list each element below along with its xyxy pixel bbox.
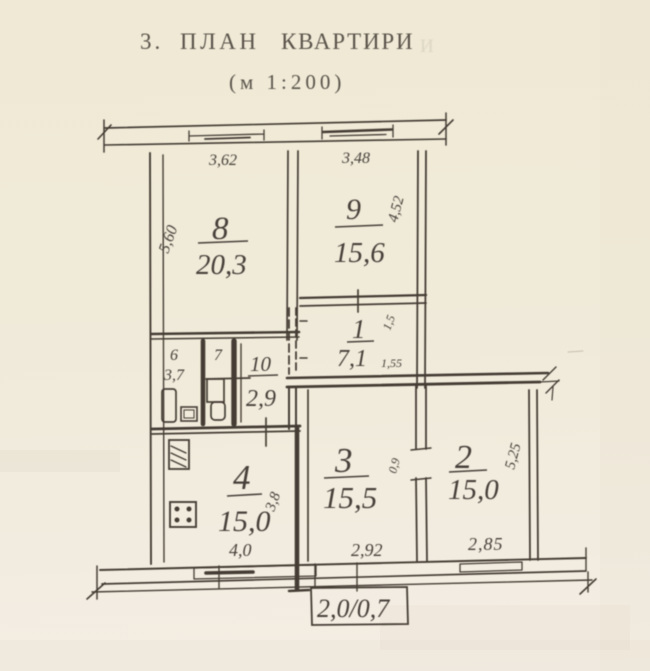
svg-text:4: 4 (233, 458, 251, 497)
svg-text:3.: 3. (140, 29, 163, 54)
svg-text:7,1: 7,1 (337, 346, 367, 372)
svg-text:2,85: 2,85 (468, 534, 504, 554)
svg-text:5,25: 5,25 (502, 441, 524, 471)
svg-text:3,7: 3,7 (163, 367, 185, 384)
svg-text:4,52: 4,52 (385, 194, 407, 224)
svg-text:7: 7 (214, 347, 223, 364)
svg-text:2,0/0,7: 2,0/0,7 (317, 594, 390, 623)
svg-text:15,0: 15,0 (448, 474, 499, 506)
svg-text:КВАРТИРИ: КВАРТИРИ (281, 29, 414, 54)
svg-text:3: 3 (334, 441, 353, 480)
svg-text:2,92: 2,92 (351, 540, 383, 560)
svg-text:20,3: 20,3 (196, 249, 247, 281)
svg-text:ПЛАН: ПЛАН (180, 29, 259, 54)
svg-text:15,5: 15,5 (323, 480, 377, 515)
svg-text:(м 1:200): (м 1:200) (229, 70, 345, 94)
svg-text:6: 6 (170, 347, 178, 364)
svg-text:15,0: 15,0 (218, 505, 271, 538)
svg-text:И: И (420, 36, 437, 57)
svg-text:3,62: 3,62 (208, 152, 237, 169)
svg-text:1,55: 1,55 (381, 356, 402, 370)
svg-text:4,0: 4,0 (229, 540, 252, 560)
svg-text:0,9: 0,9 (385, 457, 402, 475)
svg-text:1: 1 (352, 314, 366, 344)
svg-text:2,9: 2,9 (246, 386, 276, 412)
svg-text:1,5: 1,5 (380, 313, 398, 332)
svg-text:9: 9 (346, 193, 361, 226)
svg-text:10: 10 (250, 352, 272, 376)
svg-text:15,6: 15,6 (334, 237, 385, 269)
svg-text:5,60: 5,60 (156, 223, 182, 255)
svg-text:3,48: 3,48 (341, 150, 370, 167)
